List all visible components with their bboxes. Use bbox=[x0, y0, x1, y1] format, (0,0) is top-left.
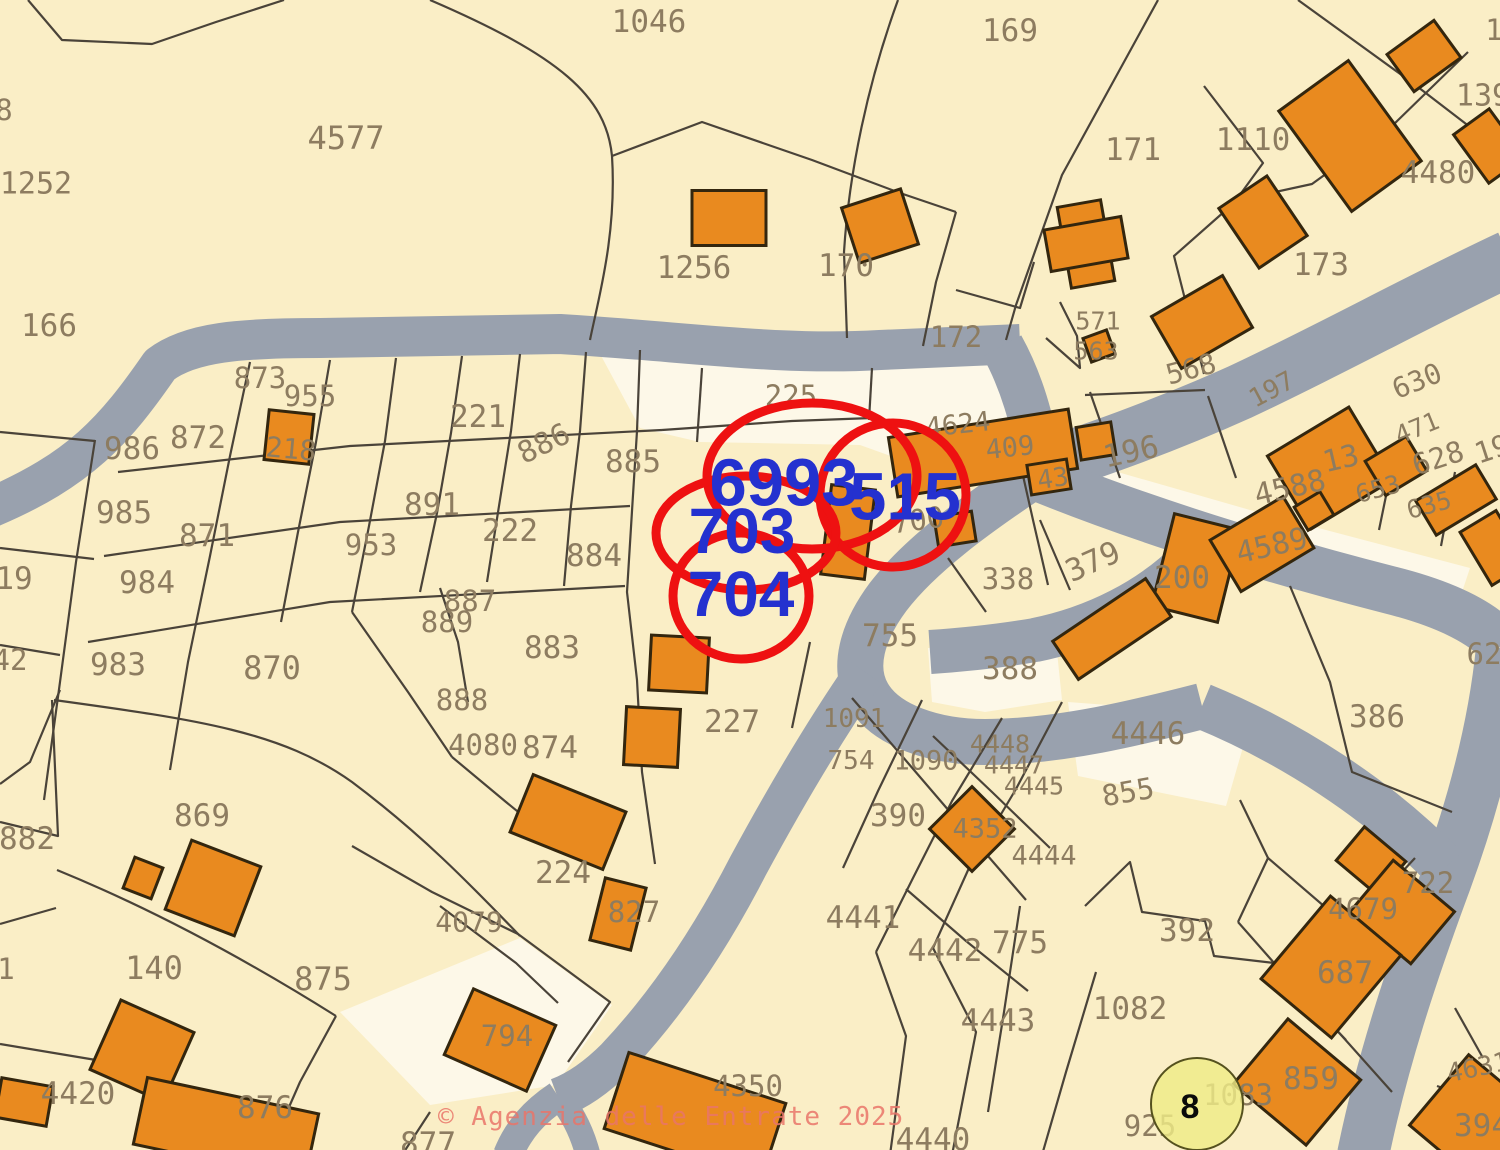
parcel-label: 873 bbox=[234, 361, 286, 395]
parcel-label: 166 bbox=[21, 308, 77, 344]
parcel-label: 394 bbox=[1454, 1108, 1500, 1144]
building bbox=[692, 191, 766, 246]
parcel-label: 4480 bbox=[1401, 155, 1476, 191]
parcel-label: 4079 bbox=[435, 906, 502, 939]
parcel-label: 43 bbox=[1035, 462, 1070, 496]
parcel-label: 875 bbox=[294, 960, 352, 998]
parcel-label: 871 bbox=[179, 518, 235, 554]
parcel-label: 1252 bbox=[0, 167, 72, 202]
parcel-label: 874 bbox=[522, 730, 578, 766]
parcel-label: 4679 bbox=[1328, 892, 1398, 926]
parcel-label: 222 bbox=[482, 513, 538, 549]
parcel-label: 571 bbox=[1075, 307, 1120, 336]
parcel-label: 4443 bbox=[961, 1003, 1036, 1039]
parcel-label: 4420 bbox=[41, 1076, 116, 1112]
parcel-label: 984 bbox=[119, 565, 175, 601]
parcel-label: 1091 bbox=[823, 704, 886, 734]
parcel-label: 409 bbox=[984, 430, 1036, 466]
parcel-label: 794 bbox=[481, 1019, 533, 1053]
parcel-label: 986 bbox=[104, 431, 160, 467]
parcel-label: 170 bbox=[818, 248, 874, 284]
parcel-label: 171 bbox=[1105, 132, 1161, 168]
parcel-label: 1082 bbox=[1093, 991, 1168, 1027]
parcel-label: 754 bbox=[828, 746, 875, 776]
parcel-label: 876 bbox=[237, 1090, 293, 1126]
parcel-label: 1046 bbox=[612, 4, 687, 40]
parcel-label: 221 bbox=[450, 399, 506, 435]
parcel-label: 983 bbox=[90, 647, 146, 683]
parcel-label: 140 bbox=[125, 949, 183, 987]
parcel-label: 885 bbox=[605, 444, 661, 480]
parcel-label: 392 bbox=[1159, 913, 1215, 949]
parcel-label: 985 bbox=[96, 495, 152, 531]
parcel-label: 869 bbox=[174, 798, 230, 834]
parcel-label: 200 bbox=[1154, 560, 1210, 596]
parcel-label: 883 bbox=[524, 630, 580, 666]
highlighted-parcel-number[interactable]: 703 bbox=[689, 495, 796, 567]
parcel-label: 687 bbox=[1317, 955, 1373, 991]
parcel-label: 4445 bbox=[1004, 772, 1064, 801]
parcel-label: 870 bbox=[243, 649, 301, 687]
parcel-label: 42 bbox=[0, 643, 27, 677]
parcel-label: 4446 bbox=[1111, 716, 1186, 752]
parcel-label: 859 bbox=[1283, 1061, 1339, 1097]
parcel-label: 4352 bbox=[952, 814, 1017, 845]
parcel-label: 1256 bbox=[657, 250, 732, 286]
building bbox=[624, 707, 681, 768]
parcel-label: 218 bbox=[264, 430, 317, 467]
highlighted-parcel-number[interactable]: 515 bbox=[849, 460, 961, 535]
parcel-label: 1 bbox=[0, 952, 15, 986]
parcel-label: 884 bbox=[566, 538, 622, 574]
parcel-label: 62 bbox=[1467, 637, 1500, 671]
parcel-label: 169 bbox=[982, 13, 1038, 49]
map-canvas[interactable]: 1046169145778125213917111104480125617017… bbox=[0, 0, 1500, 1150]
parcel-label: 775 bbox=[992, 925, 1048, 961]
parcel-label: 139 bbox=[1456, 79, 1500, 114]
parcel-label: 338 bbox=[982, 562, 1034, 596]
parcel-label: 1090 bbox=[893, 746, 958, 777]
parcel-label: 390 bbox=[870, 798, 926, 834]
parcel-label: 172 bbox=[930, 320, 982, 354]
parcel-label: 4350 bbox=[713, 1069, 783, 1103]
parcel-label: 827 bbox=[608, 895, 660, 929]
parcel-label: 4444 bbox=[1011, 841, 1076, 872]
parcel-label: 8 bbox=[0, 93, 13, 127]
agency-watermark: © Agenzia delle Entrate 2025 bbox=[438, 1102, 958, 1132]
parcel-label: 224 bbox=[535, 855, 591, 891]
parcel-label: 872 bbox=[170, 420, 226, 456]
parcel-label: 722 bbox=[1402, 866, 1454, 900]
parcel-label: 386 bbox=[1349, 699, 1405, 735]
parcel-label: 4577 bbox=[307, 119, 384, 157]
sheet-marker-label: 8 bbox=[1181, 1088, 1200, 1126]
parcel-label: 1110 bbox=[1216, 122, 1291, 158]
parcel-label: 4080 bbox=[448, 728, 518, 762]
highlighted-parcel-number[interactable]: 704 bbox=[688, 558, 795, 630]
parcel-label: 953 bbox=[345, 528, 397, 562]
parcel-label: 891 bbox=[404, 487, 460, 523]
parcel-label: 388 bbox=[982, 651, 1038, 687]
parcel-label: 19 bbox=[0, 561, 33, 597]
parcel-label: 888 bbox=[436, 683, 488, 717]
parcel-label: 173 bbox=[1293, 247, 1349, 283]
parcel-label: 4441 bbox=[826, 900, 901, 936]
parcel-label: 563 bbox=[1073, 337, 1118, 366]
cadastral-map: 1046169145778125213917111104480125617017… bbox=[0, 0, 1500, 1150]
parcel-label: 227 bbox=[704, 704, 760, 740]
parcel-label: 1 bbox=[1485, 13, 1500, 47]
parcel-label: 955 bbox=[284, 379, 336, 413]
parcel-label: 882 bbox=[0, 821, 55, 857]
parcel-label: 755 bbox=[862, 618, 918, 654]
parcel-label: 889 bbox=[421, 605, 473, 639]
parcel-label: 4442 bbox=[908, 933, 983, 969]
